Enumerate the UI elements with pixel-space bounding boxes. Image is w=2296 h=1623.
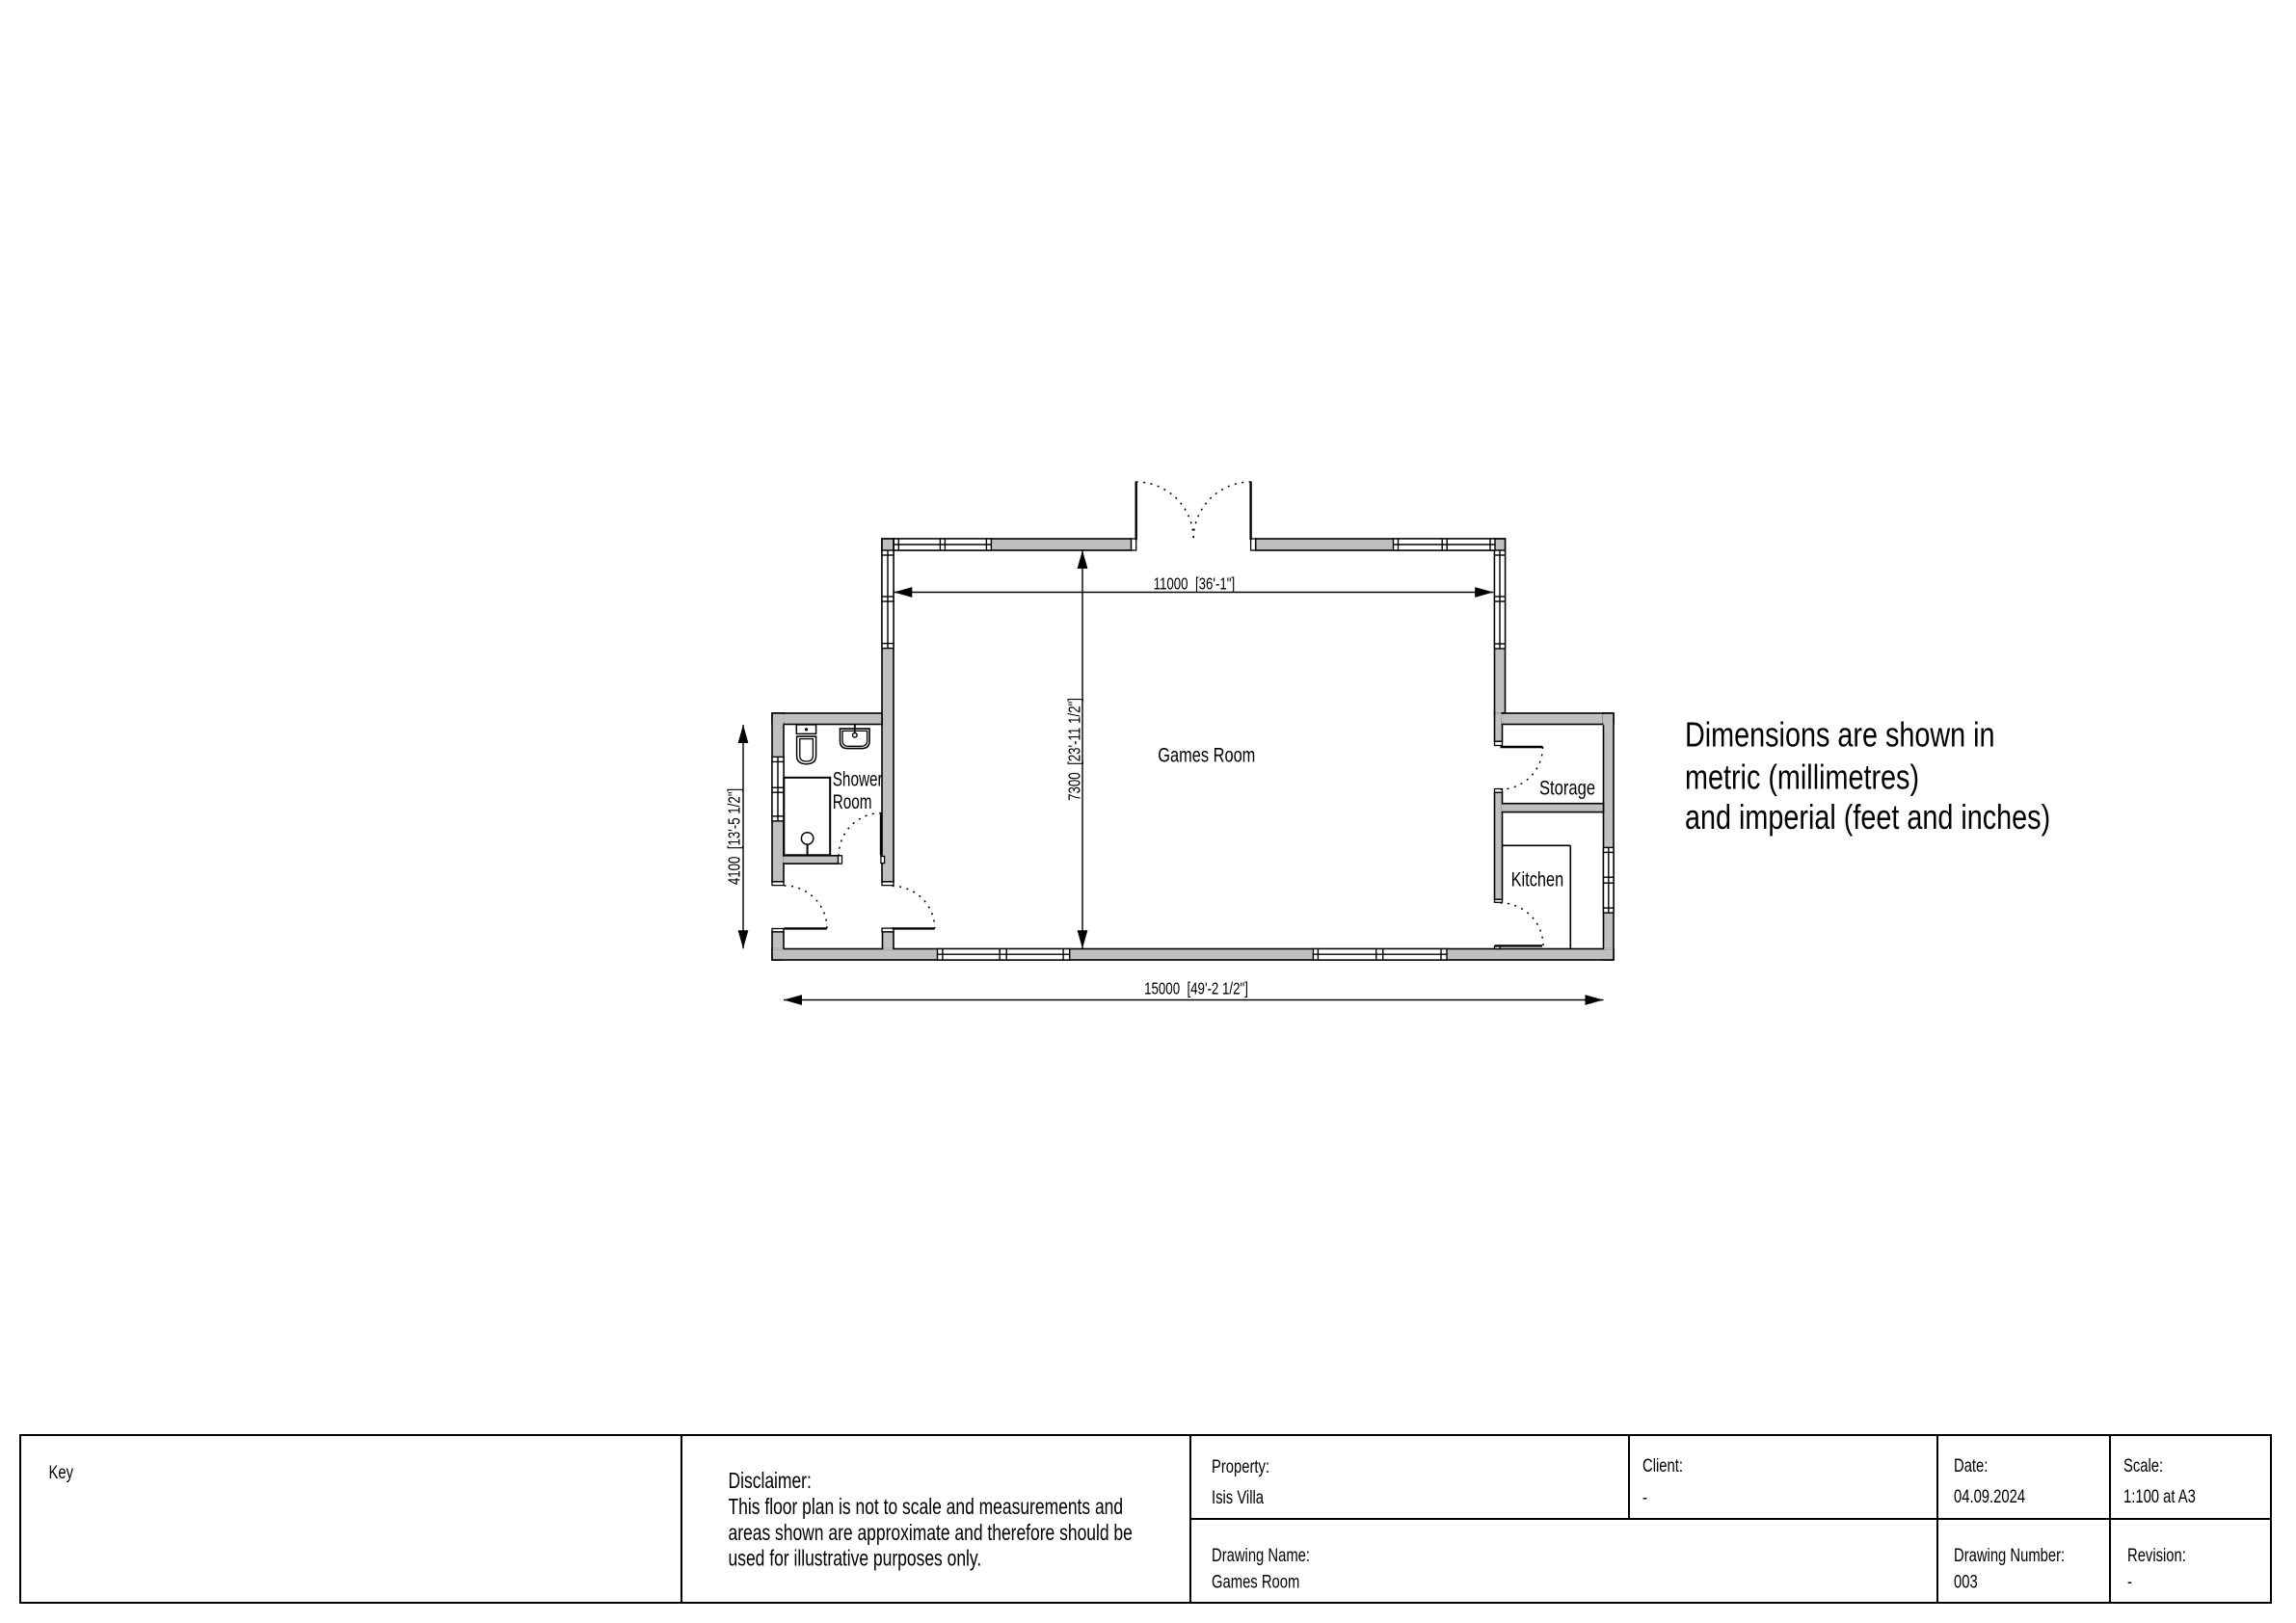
- svg-text:Scale:: Scale:: [2123, 1454, 2163, 1477]
- svg-text:Drawing Number:: Drawing Number:: [1954, 1544, 2065, 1566]
- svg-text:-: -: [1642, 1486, 1647, 1508]
- svg-text:and imperial (feet and inches): and imperial (feet and inches): [1685, 797, 2050, 837]
- svg-text:used for illustrative purposes: used for illustrative purposes only.: [729, 1547, 982, 1571]
- svg-text:-: -: [2127, 1570, 2132, 1592]
- svg-text:Disclaimer:: Disclaimer:: [729, 1470, 812, 1494]
- svg-text:This floor plan is not to scal: This floor plan is not to scale and meas…: [729, 1496, 1124, 1520]
- svg-text:11000 [36'-1"]: 11000 [36'-1"]: [1154, 575, 1236, 594]
- svg-text:areas shown are approximate an: areas shown are approximate and therefor…: [729, 1522, 1133, 1546]
- svg-text:1:100 at A3: 1:100 at A3: [2123, 1485, 2196, 1507]
- svg-text:Storage: Storage: [1539, 778, 1595, 800]
- svg-text:Key: Key: [49, 1461, 74, 1483]
- svg-text:15000 [49'-2 1/2"]: 15000 [49'-2 1/2"]: [1144, 980, 1248, 998]
- svg-text:Client:: Client:: [1642, 1454, 1683, 1477]
- svg-text:Date:: Date:: [1954, 1454, 1988, 1477]
- svg-text:4100 [13'-5 1/2"]: 4100 [13'-5 1/2"]: [726, 788, 744, 885]
- svg-text:003: 003: [1954, 1570, 1978, 1592]
- svg-text:Games Room: Games Room: [1212, 1570, 1299, 1592]
- svg-text:Property:: Property:: [1212, 1455, 1269, 1477]
- svg-text:Shower: Shower: [833, 767, 883, 790]
- svg-text:Isis Villa: Isis Villa: [1212, 1486, 1264, 1508]
- svg-text:metric (millimetres): metric (millimetres): [1685, 757, 1919, 796]
- svg-text:7300 [23'-11 1/2"]: 7300 [23'-11 1/2"]: [1066, 698, 1084, 801]
- svg-text:04.09.2024: 04.09.2024: [1954, 1485, 2025, 1507]
- svg-text:Drawing Name:: Drawing Name:: [1212, 1544, 1310, 1566]
- svg-text:Kitchen: Kitchen: [1511, 868, 1564, 891]
- svg-text:Room: Room: [833, 790, 872, 813]
- svg-text:Dimensions are shown in: Dimensions are shown in: [1685, 714, 1995, 754]
- svg-text:Revision:: Revision:: [2127, 1544, 2186, 1566]
- svg-text:Games Room: Games Room: [1158, 744, 1255, 766]
